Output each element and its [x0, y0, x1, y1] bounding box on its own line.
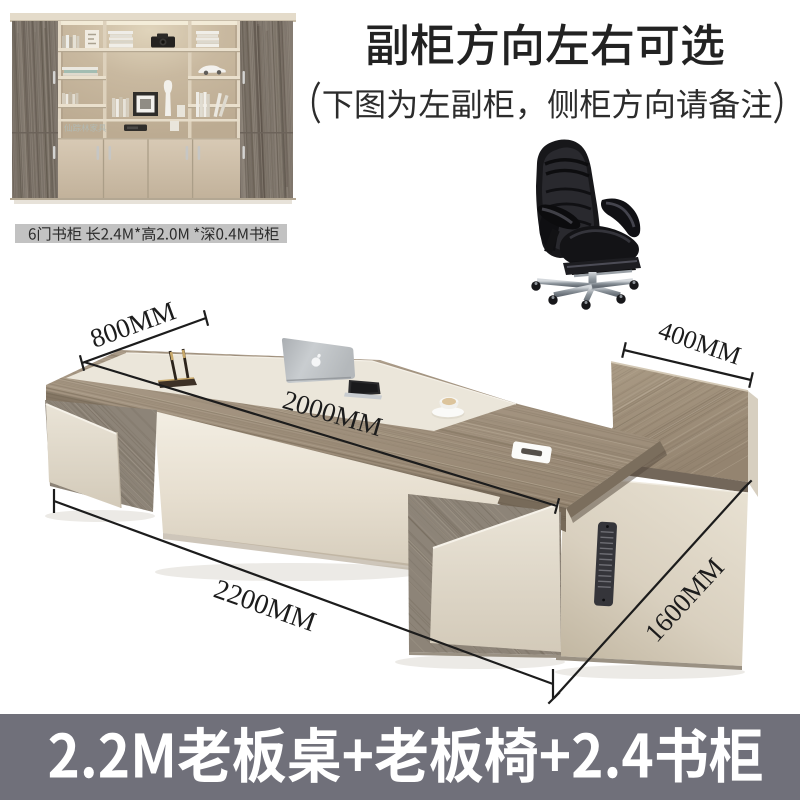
svg-text:400MM: 400MM — [655, 315, 745, 370]
svg-text:2200MM: 2200MM — [210, 574, 320, 639]
